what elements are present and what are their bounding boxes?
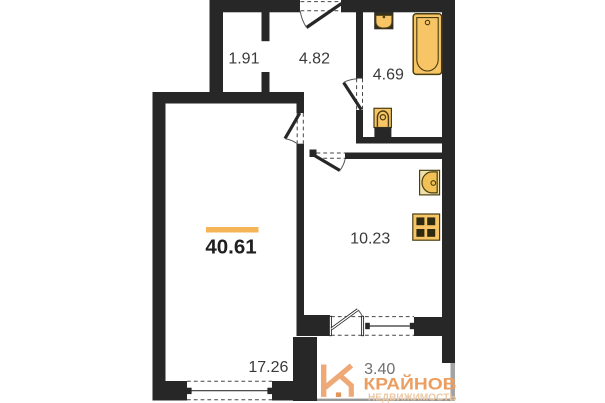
svg-text:4.69: 4.69 <box>373 66 404 83</box>
svg-text:4.82: 4.82 <box>299 51 330 68</box>
svg-text:17.26: 17.26 <box>248 359 288 376</box>
svg-text:40.61: 40.61 <box>205 236 256 259</box>
svg-text:10.23: 10.23 <box>350 231 390 248</box>
svg-text:КРАЙНОВ: КРАЙНОВ <box>364 375 457 394</box>
svg-text:1.91: 1.91 <box>228 50 259 67</box>
svg-text:НЕДВИЖИМОСТЬ: НЕДВИЖИМОСТЬ <box>368 393 457 403</box>
